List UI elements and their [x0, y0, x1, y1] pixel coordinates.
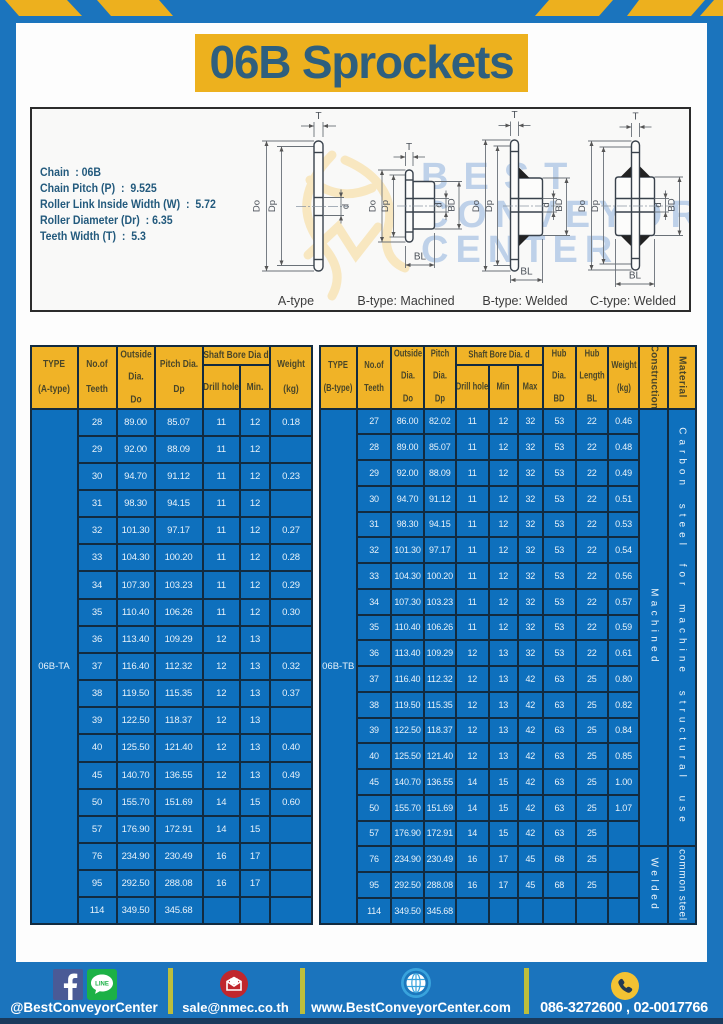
svg-text:T: T [315, 111, 321, 122]
svg-text:Dp: Dp [484, 200, 495, 212]
svg-text:T: T [632, 112, 638, 123]
svg-text:Do: Do [577, 200, 588, 212]
svg-text:B-type: Welded: B-type: Welded [482, 294, 567, 308]
svg-text:BL: BL [520, 267, 533, 278]
svg-text:d: d [541, 202, 552, 207]
svg-text:Dp: Dp [380, 200, 391, 212]
svg-text:d: d [341, 204, 352, 209]
svg-text:BL: BL [414, 252, 427, 263]
svg-text:BD: BD [554, 198, 565, 211]
svg-text:d: d [434, 202, 445, 207]
svg-text:BEST: BEST [421, 156, 582, 198]
svg-text:T: T [406, 142, 412, 153]
svg-text:A-type: A-type [278, 294, 314, 308]
svg-text:BD: BD [447, 198, 458, 211]
svg-text:BL: BL [629, 271, 642, 282]
svg-text:LINE: LINE [95, 981, 109, 987]
svg-text:Dp: Dp [590, 200, 601, 212]
svg-text:d: d [653, 202, 664, 207]
svg-text:Do: Do [471, 200, 482, 212]
svg-text:BD: BD [667, 198, 678, 211]
svg-text:T: T [511, 110, 517, 121]
svg-text:Do: Do [368, 200, 379, 212]
svg-text:C-type: Welded: C-type: Welded [590, 294, 676, 308]
svg-text:B-type: Machined: B-type: Machined [357, 294, 454, 308]
